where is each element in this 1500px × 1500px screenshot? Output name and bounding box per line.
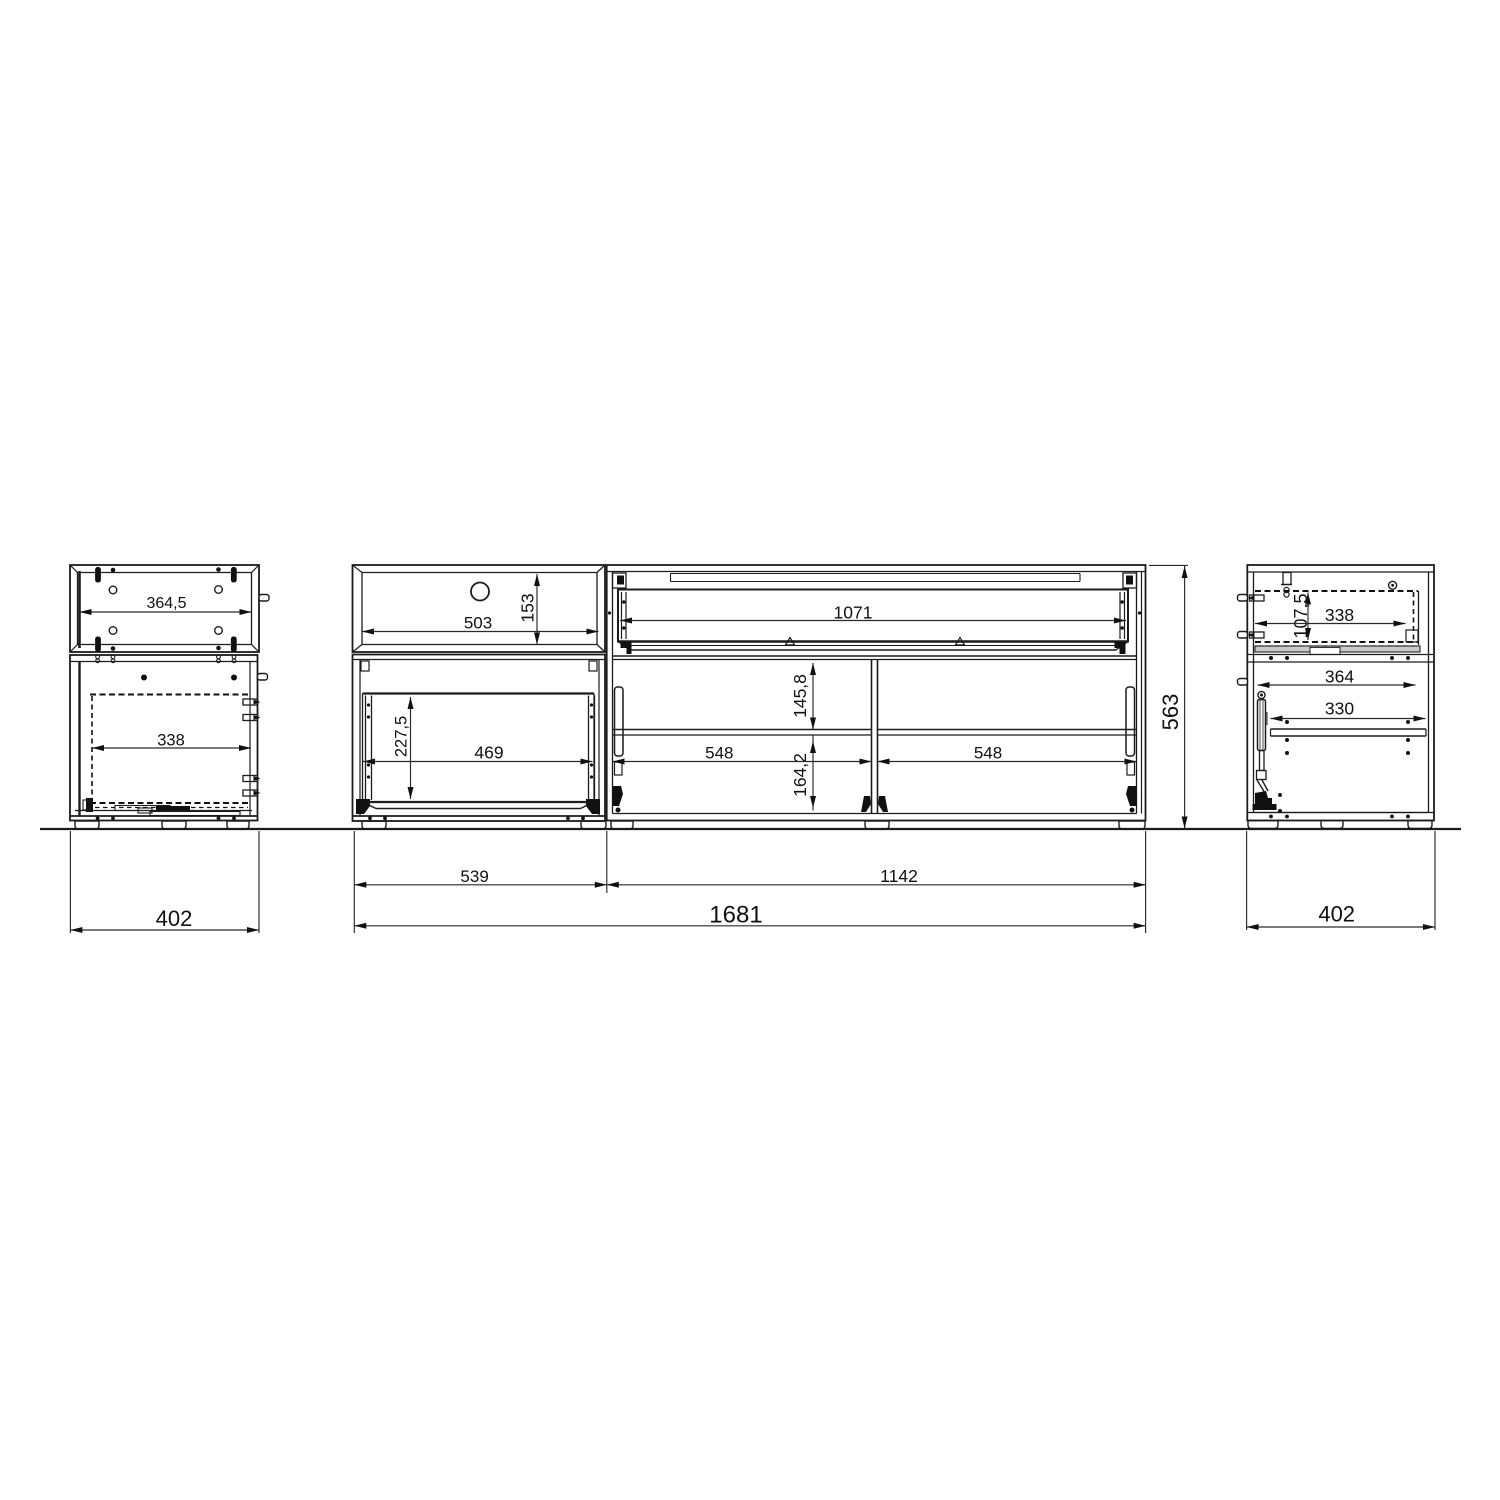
svg-text:364,5: 364,5 — [146, 595, 186, 612]
svg-text:330: 330 — [1325, 699, 1354, 719]
svg-text:503: 503 — [464, 614, 492, 633]
svg-text:338: 338 — [157, 732, 185, 750]
svg-text:402: 402 — [1318, 902, 1355, 927]
svg-text:469: 469 — [474, 743, 503, 763]
svg-text:548: 548 — [974, 744, 1002, 763]
svg-text:1681: 1681 — [709, 902, 762, 929]
svg-text:338: 338 — [1325, 605, 1354, 625]
svg-text:1142: 1142 — [880, 866, 918, 886]
svg-text:548: 548 — [705, 744, 733, 763]
svg-text:153: 153 — [518, 593, 538, 622]
svg-text:227,5: 227,5 — [393, 716, 411, 757]
svg-text:107,5: 107,5 — [1291, 593, 1311, 638]
svg-text:145,8: 145,8 — [790, 674, 810, 718]
svg-text:539: 539 — [460, 867, 488, 886]
svg-text:563: 563 — [1158, 694, 1183, 731]
svg-text:164,2: 164,2 — [790, 753, 810, 797]
svg-text:402: 402 — [156, 906, 193, 931]
svg-text:364: 364 — [1325, 667, 1354, 687]
svg-text:1071: 1071 — [834, 603, 873, 623]
